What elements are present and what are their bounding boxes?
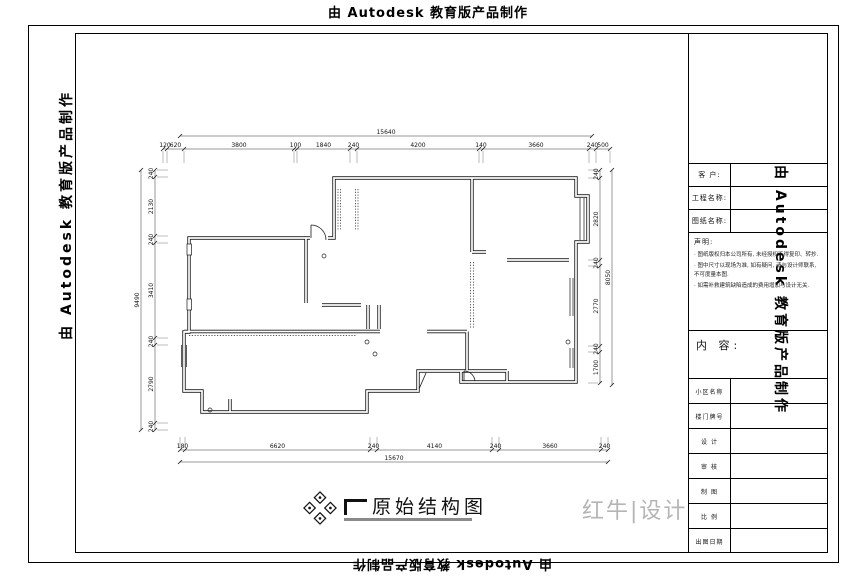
info-row-label: 设 计: [689, 429, 731, 453]
dim-label: 240: [593, 168, 600, 180]
statement-title: 声明:: [694, 237, 823, 247]
dim-label: 3410: [148, 283, 155, 298]
info-row-value: [731, 429, 828, 453]
info-row: 楼门牌号: [689, 403, 828, 428]
info-row: 比 例: [689, 503, 828, 528]
dim-label: 8050: [605, 270, 612, 285]
drawing-name-label: 图纸名称:: [689, 210, 731, 232]
studio-logo: 红牛|设计: [582, 493, 687, 525]
dashed-lines: [189, 189, 473, 336]
dim-label: 100: [290, 142, 302, 149]
dim-label: 3660: [528, 142, 543, 149]
drawing-name-value: [731, 210, 828, 232]
dim-label: 2770: [593, 298, 600, 313]
info-row-label: 审 核: [689, 454, 731, 478]
dim-label: 4140: [427, 443, 442, 450]
info-row-value: [731, 504, 828, 528]
title-block-row-client: 客 户:: [689, 163, 828, 186]
info-row: 出图日期: [689, 528, 828, 553]
caption-diamond-logo-icon: [303, 491, 337, 525]
info-row: 制 图: [689, 478, 828, 503]
info-row-label: 楼门牌号: [689, 404, 731, 428]
dim-label: 240: [348, 142, 360, 149]
content-label: 内 容:: [696, 339, 741, 352]
dim-label: 2820: [593, 211, 600, 226]
info-row: 设 计: [689, 428, 828, 453]
statement-cell: 声明: 图纸版权归本公司所有, 未经授权不得复印、转抄. 图中尺寸以现场为准, …: [689, 232, 828, 330]
dim-label: 15640: [376, 129, 395, 136]
dim-label: 3800: [231, 142, 246, 149]
statement-item: 图中尺寸以现场为准, 如有疑问, 请与设计师联系, 不可度量本图.: [694, 262, 823, 279]
info-row-label: 制 图: [689, 479, 731, 503]
dim-label: 4200: [410, 142, 425, 149]
dim-label: 240: [593, 343, 600, 355]
dim-label: 500: [597, 142, 609, 149]
info-row: 小区名称: [689, 378, 828, 403]
dim-label: 240: [490, 443, 502, 450]
info-row-label: 比 例: [689, 504, 731, 528]
dim-label: 240: [593, 257, 600, 269]
walls: [184, 178, 588, 412]
statement-item: 如需补救建筑缺陷造成的费用增加与设计无关.: [694, 282, 823, 290]
floorplan: 1206203800100184024042001403660240500156…: [130, 115, 660, 480]
dim-label: 3660: [542, 443, 557, 450]
info-row-value: [731, 479, 828, 503]
client-label: 客 户:: [689, 164, 731, 186]
dim-label: 620: [170, 142, 182, 149]
info-row: 审 核: [689, 453, 828, 478]
title-block-row-drawing: 图纸名称:: [689, 209, 828, 232]
statement-item: 图纸版权归本公司所有, 未经授权不得复印、转抄.: [694, 251, 823, 259]
dim-label: 240: [148, 336, 155, 348]
dim-label: 240: [148, 421, 155, 433]
caption-bracket: [344, 499, 367, 515]
caption-underline: [344, 518, 472, 521]
info-row-value: [731, 529, 828, 553]
project-name-label: 工程名称:: [689, 187, 731, 209]
bathroom-door-swing-icon: [419, 371, 475, 389]
info-row-value: [731, 379, 828, 403]
info-row-label: 小区名称: [689, 379, 731, 403]
dim-label: 15670: [384, 455, 403, 462]
dim-label: 2130: [148, 199, 155, 214]
dim-label: 240: [599, 443, 611, 450]
dim-label: 240: [148, 168, 155, 180]
watermark-top: 由 Autodesk 教育版产品制作: [328, 2, 528, 21]
info-row-value: [731, 404, 828, 428]
dim-label: 240: [368, 443, 380, 450]
window-lines: [182, 198, 585, 368]
info-row-value: [731, 454, 828, 478]
content-cell: 内 容:: [689, 330, 828, 378]
dim-label: 180: [177, 443, 189, 450]
info-row-label: 出图日期: [689, 529, 731, 553]
dim-label: 2790: [148, 376, 155, 391]
dim-label: 9490: [134, 292, 141, 307]
project-name-value: [731, 187, 828, 209]
title-block-row-project: 工程名称:: [689, 186, 828, 209]
dim-label: 240: [148, 234, 155, 246]
client-value: [731, 164, 828, 186]
dim-label: 1700: [593, 360, 600, 375]
dim-label: 140: [475, 142, 487, 149]
dim-label: 6620: [270, 443, 285, 450]
drawing-caption: 原始结构图: [372, 492, 487, 519]
dim-label: 1840: [316, 142, 331, 149]
title-block: 客 户: 工程名称: 图纸名称: 声明: 图纸版权归本公司所有, 未经授权不得复…: [688, 33, 828, 553]
